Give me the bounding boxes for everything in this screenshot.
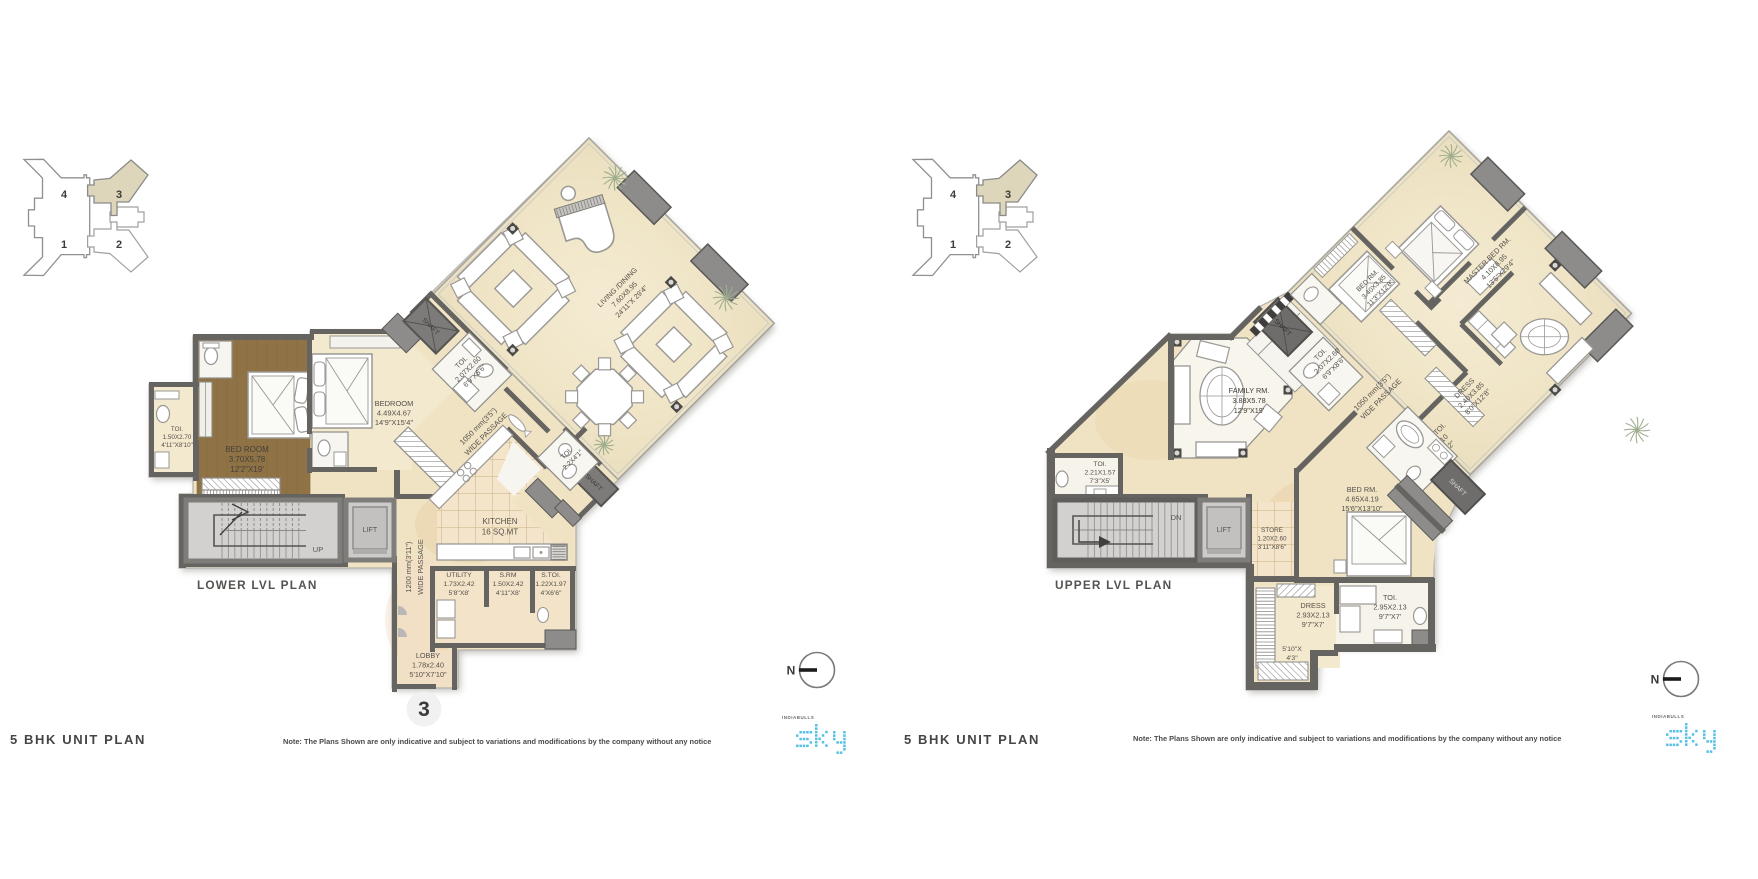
svg-text:14'9"X15'4": 14'9"X15'4" <box>375 418 414 427</box>
svg-text:UPPER LVL PLAN: UPPER LVL PLAN <box>1055 578 1172 592</box>
svg-text:3'11"X8'6": 3'11"X8'6" <box>1258 544 1287 551</box>
svg-text:5'10"X: 5'10"X <box>1282 646 1302 653</box>
svg-text:1: 1 <box>61 239 67 251</box>
svg-text:3.70X5.78: 3.70X5.78 <box>229 455 266 464</box>
svg-text:FAMILY RM.: FAMILY RM. <box>1229 386 1270 395</box>
svg-text:2.95X2.13: 2.95X2.13 <box>1373 603 1406 612</box>
svg-text:4.65X4.19: 4.65X4.19 <box>1345 495 1378 504</box>
svg-text:N: N <box>1651 673 1660 687</box>
svg-text:Note: The Plans Shown are only: Note: The Plans Shown are only indicativ… <box>1133 734 1561 743</box>
svg-text:4'11"X8'10": 4'11"X8'10" <box>161 442 193 449</box>
svg-text:INDIABULLS: INDIABULLS <box>782 715 814 720</box>
svg-text:N: N <box>787 664 796 678</box>
svg-text:3: 3 <box>1005 189 1011 201</box>
svg-text:2.93X2.13: 2.93X2.13 <box>1296 611 1329 620</box>
svg-text:4: 4 <box>61 189 68 201</box>
svg-text:1.50X2.42: 1.50X2.42 <box>493 581 524 588</box>
svg-text:BED ROOM: BED ROOM <box>225 445 269 454</box>
svg-text:4.49X4.67: 4.49X4.67 <box>377 409 411 418</box>
svg-text:15'6"X13'10": 15'6"X13'10" <box>1341 504 1383 513</box>
svg-text:KITCHEN: KITCHEN <box>482 517 517 526</box>
svg-text:2: 2 <box>1005 239 1011 251</box>
svg-text:9'7"X7': 9'7"X7' <box>1302 620 1325 629</box>
svg-text:WIDE PASSAGE: WIDE PASSAGE <box>416 539 425 595</box>
svg-text:INDIABULLS: INDIABULLS <box>1652 714 1684 719</box>
svg-text:16 SQ.MT: 16 SQ.MT <box>482 528 519 537</box>
svg-text:5'10"X7'10": 5'10"X7'10" <box>409 670 447 679</box>
svg-text:DRESS: DRESS <box>1300 601 1325 610</box>
svg-text:1200 mm(3'11"): 1200 mm(3'11") <box>404 542 413 593</box>
svg-text:4: 4 <box>950 189 957 201</box>
svg-text:7'3"X5': 7'3"X5' <box>1090 478 1111 485</box>
svg-text:BED RM.: BED RM. <box>1347 485 1377 494</box>
svg-text:Note: The Plans Shown are only: Note: The Plans Shown are only indicativ… <box>283 737 711 746</box>
svg-text:S.RM: S.RM <box>500 572 517 579</box>
svg-text:LOWER LVL PLAN: LOWER LVL PLAN <box>197 578 318 592</box>
svg-text:BEDROOM: BEDROOM <box>375 399 414 408</box>
svg-text:1.50X2.70: 1.50X2.70 <box>163 434 192 441</box>
svg-text:9'7"X7': 9'7"X7' <box>1379 612 1402 621</box>
svg-text:12'9"X19': 12'9"X19' <box>1234 406 1265 415</box>
svg-text:5'8"X8': 5'8"X8' <box>449 590 470 597</box>
svg-text:2.21X1.57: 2.21X1.57 <box>1085 470 1116 477</box>
svg-text:5 BHK UNIT PLAN: 5 BHK UNIT PLAN <box>904 732 1040 747</box>
svg-text:2: 2 <box>116 239 122 251</box>
svg-text:1.73X2.42: 1.73X2.42 <box>444 581 475 588</box>
svg-text:UTILITY: UTILITY <box>446 572 472 579</box>
svg-text:3.88X5.78: 3.88X5.78 <box>1232 396 1265 405</box>
svg-text:5 BHK UNIT PLAN: 5 BHK UNIT PLAN <box>10 732 146 747</box>
svg-text:1.22X1.97: 1.22X1.97 <box>536 581 567 588</box>
svg-text:1: 1 <box>950 239 956 251</box>
svg-text:TOI.: TOI. <box>1093 461 1106 468</box>
svg-text:UP: UP <box>313 545 323 554</box>
svg-text:S.TOI.: S.TOI. <box>541 572 561 579</box>
svg-text:LIFT: LIFT <box>1217 527 1232 534</box>
svg-text:4'X6'6": 4'X6'6" <box>541 590 562 597</box>
svg-text:STORE: STORE <box>1261 527 1283 534</box>
svg-text:LOBBY: LOBBY <box>416 651 440 660</box>
svg-text:1.20X2.60: 1.20X2.60 <box>1257 536 1287 543</box>
svg-text:12'2"X19': 12'2"X19' <box>230 465 264 474</box>
svg-text:3: 3 <box>418 698 430 721</box>
svg-text:1.78x2.40: 1.78x2.40 <box>412 661 444 670</box>
svg-text:TOI.: TOI. <box>171 426 183 433</box>
svg-text:4'3": 4'3" <box>1286 655 1298 662</box>
svg-text:TOI.: TOI. <box>1383 593 1397 602</box>
svg-text:DN: DN <box>1171 513 1182 522</box>
svg-text:4'11"X8': 4'11"X8' <box>496 590 520 597</box>
svg-text:3: 3 <box>116 189 122 201</box>
svg-text:LIFT: LIFT <box>363 527 378 534</box>
